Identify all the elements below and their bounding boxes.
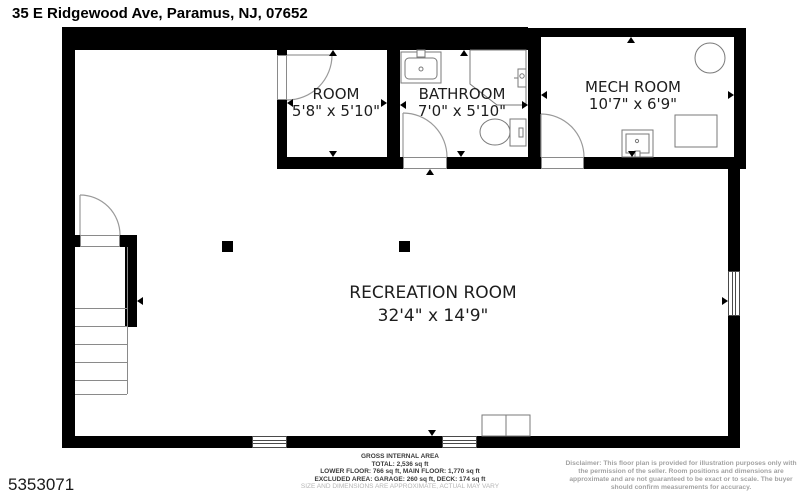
arrow-down-icon: [457, 151, 465, 157]
arrow-up-icon: [329, 50, 337, 56]
wall-left: [62, 27, 75, 448]
area-summary-note: SIZE AND DIMENSIONS ARE APPROXIMATE, ACT…: [270, 483, 530, 491]
window-bottom-left: [252, 437, 287, 448]
wall-top-main: [62, 27, 528, 50]
room-name: MECH ROOM: [553, 79, 713, 96]
window-bottom-right: [442, 437, 477, 448]
threshold-mech: [542, 158, 584, 169]
disclaimer-line: should confirm measurements for accuracy…: [565, 484, 797, 492]
utility-sink: [622, 130, 653, 157]
address-title: 35 E Ridgewood Ave, Paramus, NJ, 07652: [12, 5, 308, 22]
window-right-wall: [729, 271, 740, 316]
staircase: [75, 247, 128, 395]
water-tank: [695, 43, 725, 73]
wall-right-mech: [734, 28, 746, 169]
doors: [80, 55, 584, 235]
area-summary-excluded: EXCLUDED AREA: GARAGE: 260 sq ft, DECK: …: [270, 476, 530, 484]
post-right: [399, 241, 410, 252]
wall-room-left-upper: [277, 50, 287, 55]
threshold-stairs: [81, 236, 120, 247]
area-summary-total: TOTAL: 2,536 sq ft: [270, 461, 530, 469]
arrow-up-icon: [460, 50, 468, 56]
room-dims: 7'0" x 5'10": [382, 103, 542, 120]
sink: [401, 50, 441, 83]
disclaimer-line: approximate and are not guaranteed to be…: [565, 476, 797, 484]
arrow-up-icon: [426, 169, 434, 175]
area-summary: GROSS INTERNAL AREA TOTAL: 2,536 sq ft L…: [270, 453, 530, 491]
disclaimer-line: the permission of the seller. Room posit…: [565, 468, 797, 476]
wall-bottom-c: [477, 436, 740, 448]
wall-stair-stub-left: [75, 235, 80, 247]
recreation-room-label: RECREATION ROOM 32'4" x 14'9": [303, 282, 563, 328]
wall-strip-c: [584, 157, 746, 169]
door-mech-room: [541, 114, 584, 157]
disclaimer-line: Disclaimer: This floor plan is provided …: [565, 460, 797, 468]
area-summary-floors: LOWER FLOOR: 766 sq ft, MAIN FLOOR: 1,77…: [270, 468, 530, 476]
wall-top-mech: [528, 28, 746, 37]
room-dims: 32'4" x 14'9": [303, 305, 563, 328]
post-left: [222, 241, 233, 252]
room-name: RECREATION ROOM: [303, 282, 563, 305]
arrow-down-icon: [329, 151, 337, 157]
wall-strip-a: [277, 157, 403, 169]
wall-strip-b: [447, 157, 541, 169]
disclaimer-text: Disclaimer: This floor plan is provided …: [565, 460, 797, 492]
arrow-left-icon: [137, 297, 143, 305]
rec-room-cabinet: [482, 415, 530, 436]
wall-stair-stub-right: [120, 235, 137, 247]
threshold-bathroom: [404, 158, 447, 169]
floor-plan-page: 35 E Ridgewood Ave, Paramus, NJ, 07652 R…: [0, 0, 800, 500]
wall-bottom-a: [62, 436, 252, 448]
mech-room-label: MECH ROOM 10'7" x 6'9": [553, 79, 713, 113]
arrow-up-icon: [627, 37, 635, 43]
room-dims: 10'7" x 6'9": [553, 96, 713, 113]
wall-bottom-b: [287, 436, 442, 448]
mls-number: 5353071: [8, 475, 74, 495]
arrow-down-icon: [428, 430, 436, 436]
toilet: [480, 119, 526, 146]
wall-stair-vertical: [125, 247, 137, 327]
bathroom-label: BATHROOM 7'0" x 5'10": [382, 86, 542, 120]
room-name: BATHROOM: [382, 86, 542, 103]
equipment-box: [675, 115, 717, 147]
shower-head-icon: [514, 69, 526, 87]
arrow-right-icon: [728, 91, 734, 99]
arrow-right-icon: [722, 297, 728, 305]
area-summary-title: GROSS INTERNAL AREA: [270, 453, 530, 461]
door-stairs: [80, 195, 120, 235]
floor-plan-drawing: [0, 0, 800, 500]
